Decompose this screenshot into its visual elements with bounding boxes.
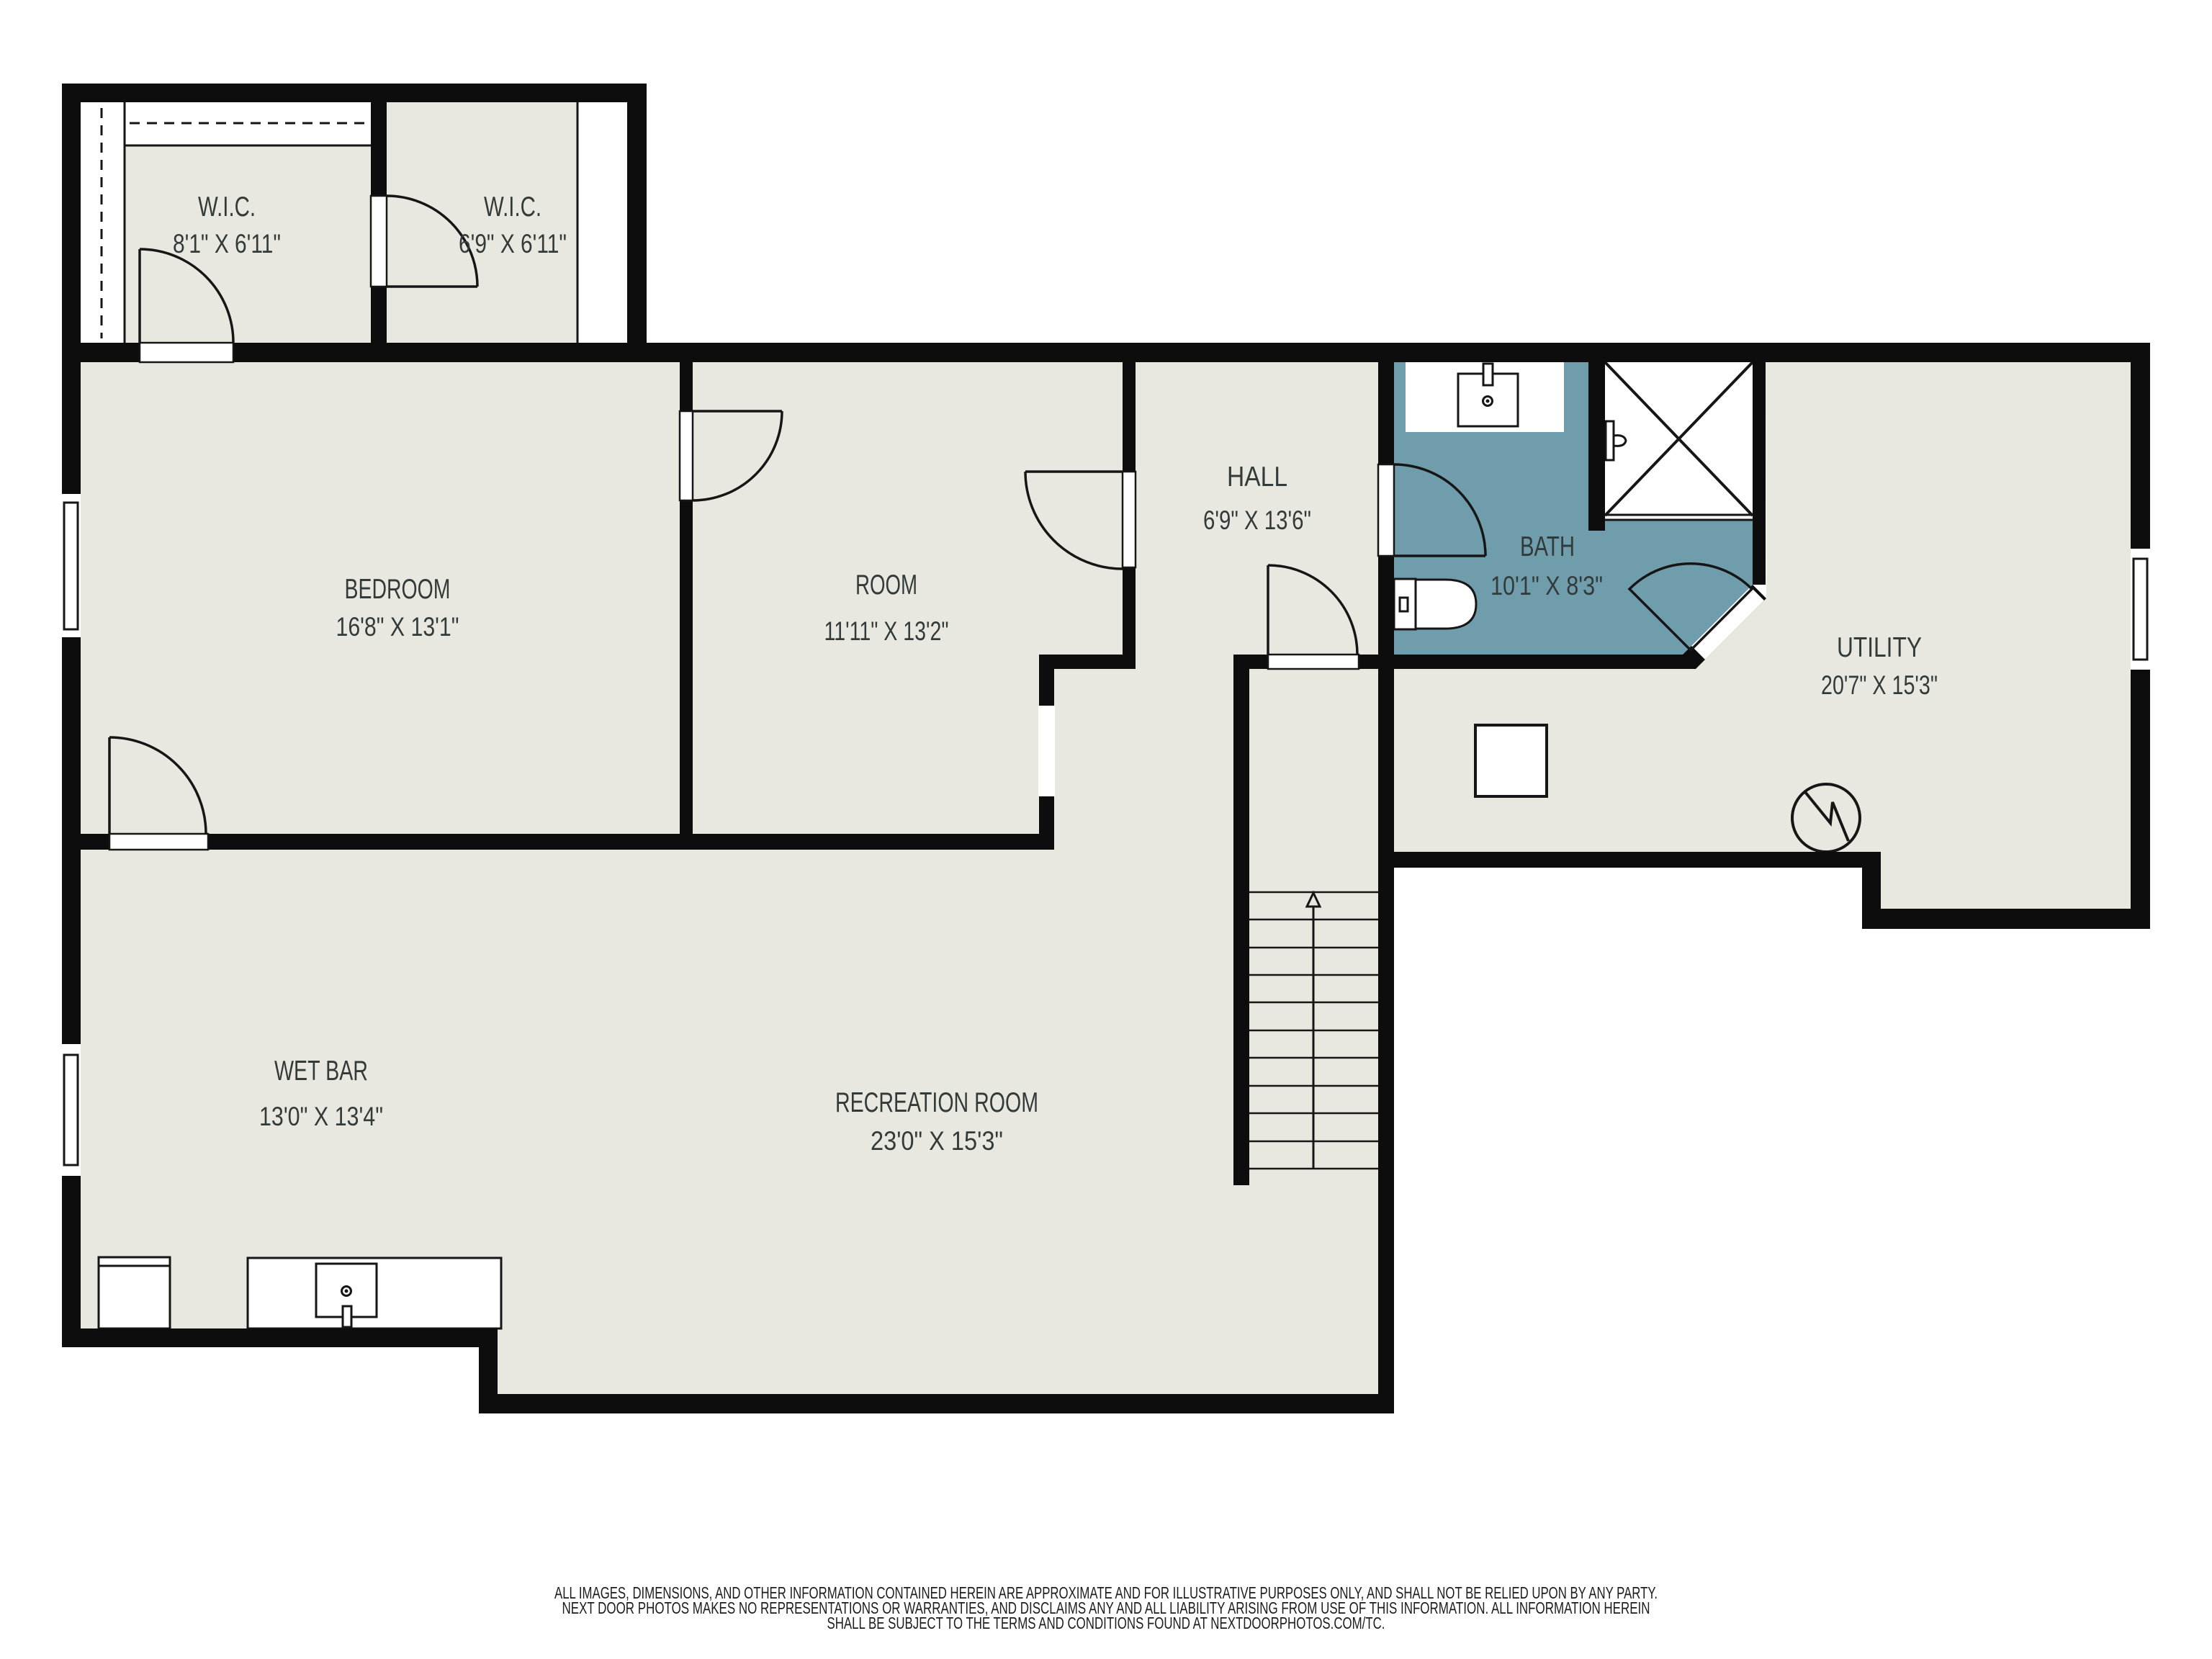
svg-text:6'9" X 6'11": 6'9" X 6'11"	[459, 229, 567, 258]
svg-text:23'0" X 15'3": 23'0" X 15'3"	[871, 1126, 1003, 1156]
svg-text:BATH: BATH	[1520, 531, 1575, 562]
svg-text:HALL: HALL	[1227, 462, 1287, 493]
svg-text:RECREATION ROOM: RECREATION ROOM	[835, 1087, 1038, 1118]
svg-text:6'9" X 13'6": 6'9" X 13'6"	[1203, 505, 1311, 535]
svg-text:20'7" X 15'3": 20'7" X 15'3"	[1821, 670, 1938, 700]
svg-text:SHALL BE SUBJECT TO THE TERMS: SHALL BE SUBJECT TO THE TERMS AND CONDIT…	[827, 1614, 1385, 1632]
svg-text:BEDROOM: BEDROOM	[345, 574, 451, 605]
svg-text:8'1" X 6'11": 8'1" X 6'11"	[173, 229, 281, 258]
svg-text:WET BAR: WET BAR	[274, 1056, 368, 1087]
svg-text:13'0" X 13'4": 13'0" X 13'4"	[259, 1102, 383, 1131]
svg-text:W.I.C.: W.I.C.	[198, 192, 256, 222]
svg-text:16'8" X 13'1": 16'8" X 13'1"	[336, 612, 459, 642]
svg-text:ROOM: ROOM	[855, 570, 917, 601]
svg-text:11'11" X 13'2": 11'11" X 13'2"	[824, 616, 949, 646]
svg-text:10'1" X 8'3": 10'1" X 8'3"	[1491, 571, 1603, 601]
svg-text:W.I.C.: W.I.C.	[484, 192, 541, 222]
svg-text:UTILITY: UTILITY	[1837, 632, 1922, 663]
